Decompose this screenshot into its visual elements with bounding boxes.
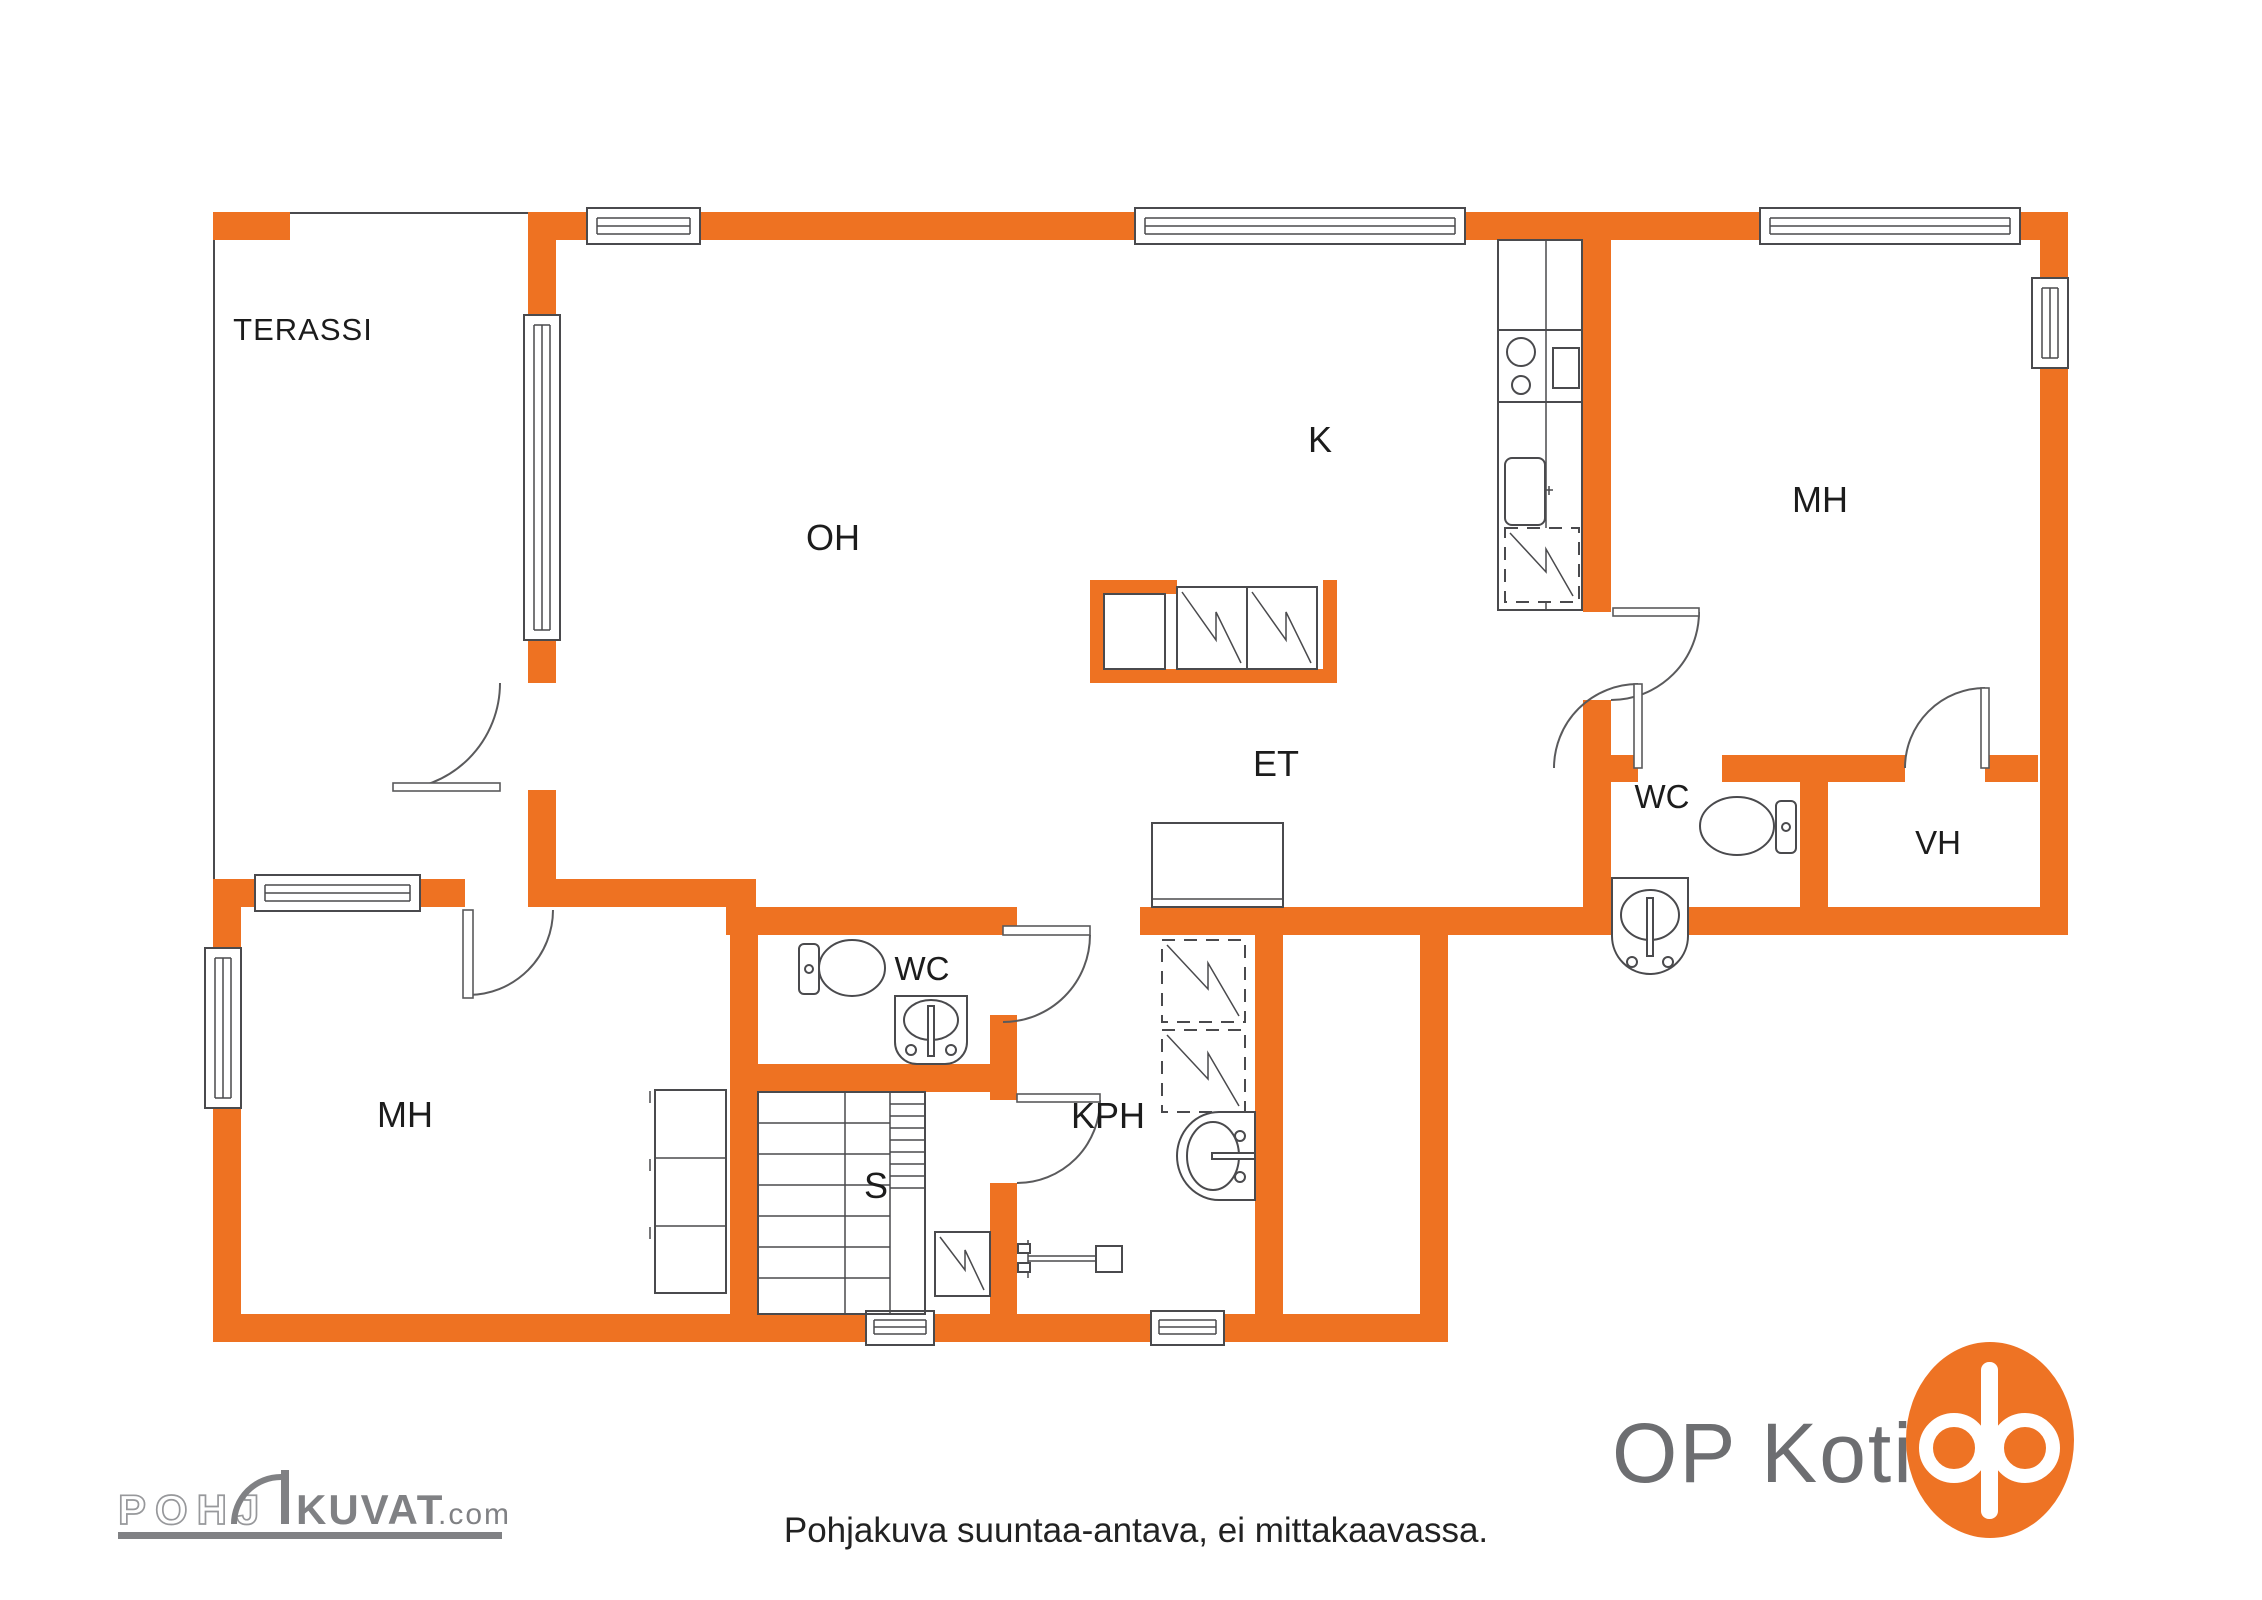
sauna-stove-icon [935, 1232, 990, 1296]
washing-machine-slot-2 [1162, 1030, 1245, 1112]
window-bottom-kph [1151, 1311, 1224, 1345]
window-left-mh [205, 948, 241, 1108]
door-vh [1905, 688, 1989, 768]
door-et-mh-right [1611, 608, 1699, 700]
sink-center-icon [895, 996, 967, 1064]
pohjakuvat-com-text: .com [438, 1498, 511, 1531]
window-top-mh-right [1760, 208, 2020, 244]
door-oh-terrace [393, 683, 500, 791]
window-top-oh [587, 208, 700, 244]
dishwasher-icon [1505, 528, 1579, 602]
room-label-vh: VH [1915, 824, 1961, 861]
room-label-k: K [1308, 419, 1332, 460]
kitchen-sink-icon [1505, 458, 1553, 525]
window-bottom-sauna [866, 1311, 934, 1345]
disclaimer-text: Pohjakuva suuntaa-antava, ei mittakaavas… [784, 1511, 1488, 1550]
sink-right-icon [1612, 878, 1688, 974]
room-label-oh: OH [806, 517, 860, 558]
door-wc-center [1003, 926, 1090, 1022]
fireplace [1090, 580, 1337, 683]
sink-kph-icon [1177, 1112, 1255, 1200]
room-label-mh-left: MH [377, 1094, 433, 1135]
room-label-wc-center: WC [895, 950, 950, 987]
shower-icon [1018, 1240, 1122, 1278]
room-label-et: ET [1253, 743, 1299, 784]
door-oh-mh-left [463, 910, 553, 998]
walls [213, 212, 2068, 1342]
window-right-mh [2032, 278, 2068, 368]
op-koti-logo: OP Koti [1612, 1342, 2074, 1538]
hall-wardrobe [1152, 823, 1283, 907]
pohjakuvat-bold-text: KUVAT [296, 1486, 444, 1533]
room-label-mh-right: MH [1792, 479, 1848, 520]
floorplan-canvas: TERASSI OH K MH ET WC VH MH WC S KPH POH… [0, 0, 2262, 1600]
floorplan-svg: TERASSI OH K MH ET WC VH MH WC S KPH POH… [0, 0, 2262, 1600]
closet-mh-left [650, 1090, 726, 1293]
op-koti-text: OP Koti [1612, 1406, 1914, 1500]
window-terrace-oh [524, 315, 560, 640]
op-logo-icon [1906, 1342, 2074, 1538]
room-label-terassi: TERASSI [233, 312, 373, 347]
toilet-right-icon [1700, 797, 1796, 855]
window-terrace-mh [255, 875, 420, 911]
window-top-kitchen [1135, 208, 1465, 244]
toilet-center-icon [799, 940, 885, 996]
room-label-s: S [864, 1165, 888, 1206]
room-label-kph: KPH [1071, 1095, 1145, 1136]
sauna-benches [758, 1092, 925, 1314]
washing-machine-slot-1 [1162, 940, 1245, 1022]
room-label-wc-right: WC [1635, 778, 1690, 815]
pohjakuvat-underline [118, 1532, 502, 1539]
pohjakuvat-logo: POHJ KUVAT .com [118, 1470, 511, 1539]
stove-icon [1498, 330, 1582, 402]
